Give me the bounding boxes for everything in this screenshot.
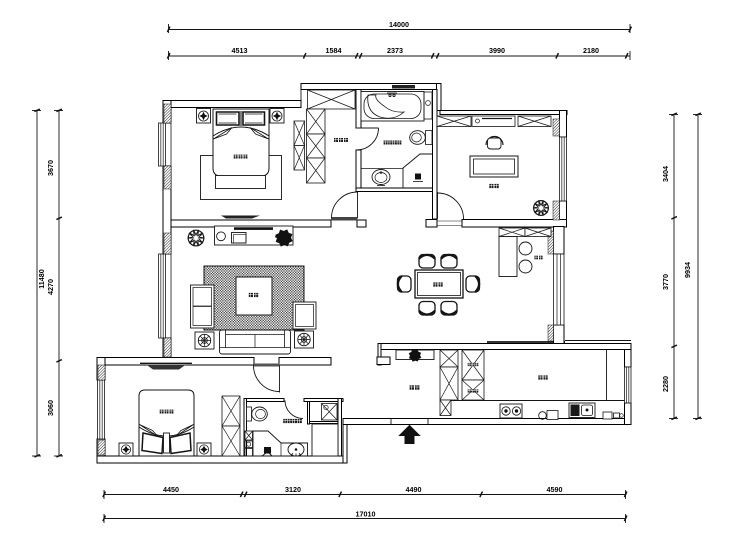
svg-text:3060: 3060 (46, 400, 55, 416)
svg-text:3120: 3120 (285, 485, 301, 494)
svg-text:3990: 3990 (489, 46, 505, 55)
svg-text:2180: 2180 (583, 46, 599, 55)
svg-text:4490: 4490 (406, 485, 422, 494)
svg-text:14000: 14000 (389, 20, 409, 29)
svg-text:4270: 4270 (46, 279, 55, 295)
svg-text:2373: 2373 (387, 46, 403, 55)
svg-text:3770: 3770 (661, 274, 670, 290)
svg-text:3404: 3404 (661, 166, 670, 182)
svg-text:4513: 4513 (232, 46, 248, 55)
svg-text:3670: 3670 (46, 160, 55, 176)
svg-text:2280: 2280 (661, 376, 670, 392)
svg-text:17010: 17010 (356, 510, 376, 519)
svg-text:4450: 4450 (163, 485, 179, 494)
svg-text:4590: 4590 (547, 485, 563, 494)
svg-text:11480: 11480 (37, 269, 46, 289)
svg-text:9934: 9934 (683, 262, 692, 278)
svg-text:1584: 1584 (326, 46, 342, 55)
